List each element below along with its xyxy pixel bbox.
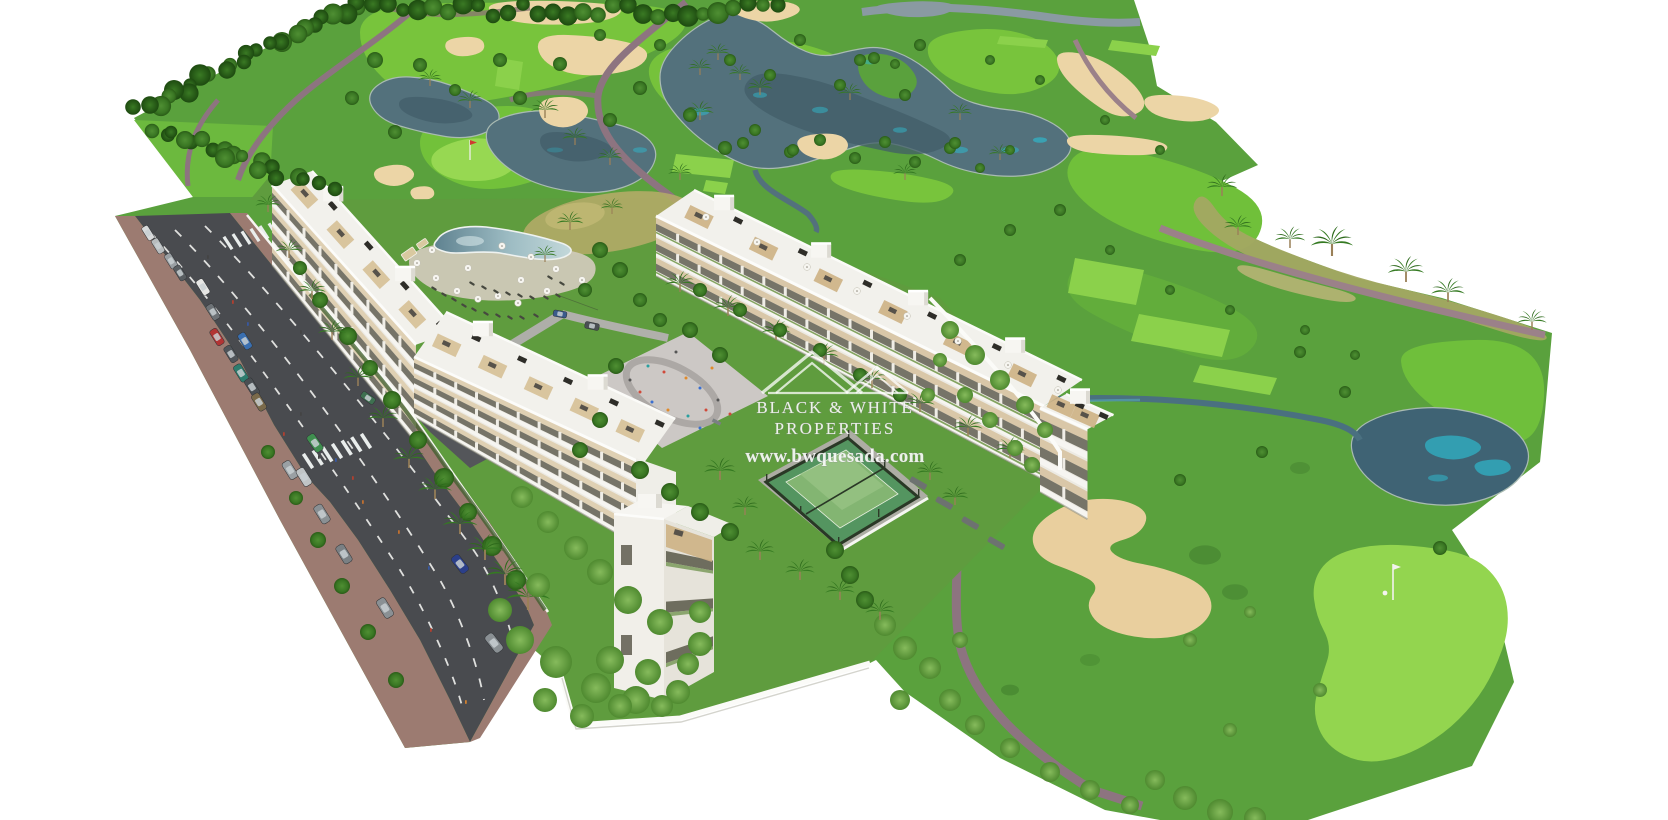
- svg-text:www.bwquesada.com: www.bwquesada.com: [745, 446, 924, 467]
- svg-text:BLACK & WHITE: BLACK & WHITE: [756, 398, 913, 417]
- svg-text:PROPERTIES: PROPERTIES: [774, 419, 895, 438]
